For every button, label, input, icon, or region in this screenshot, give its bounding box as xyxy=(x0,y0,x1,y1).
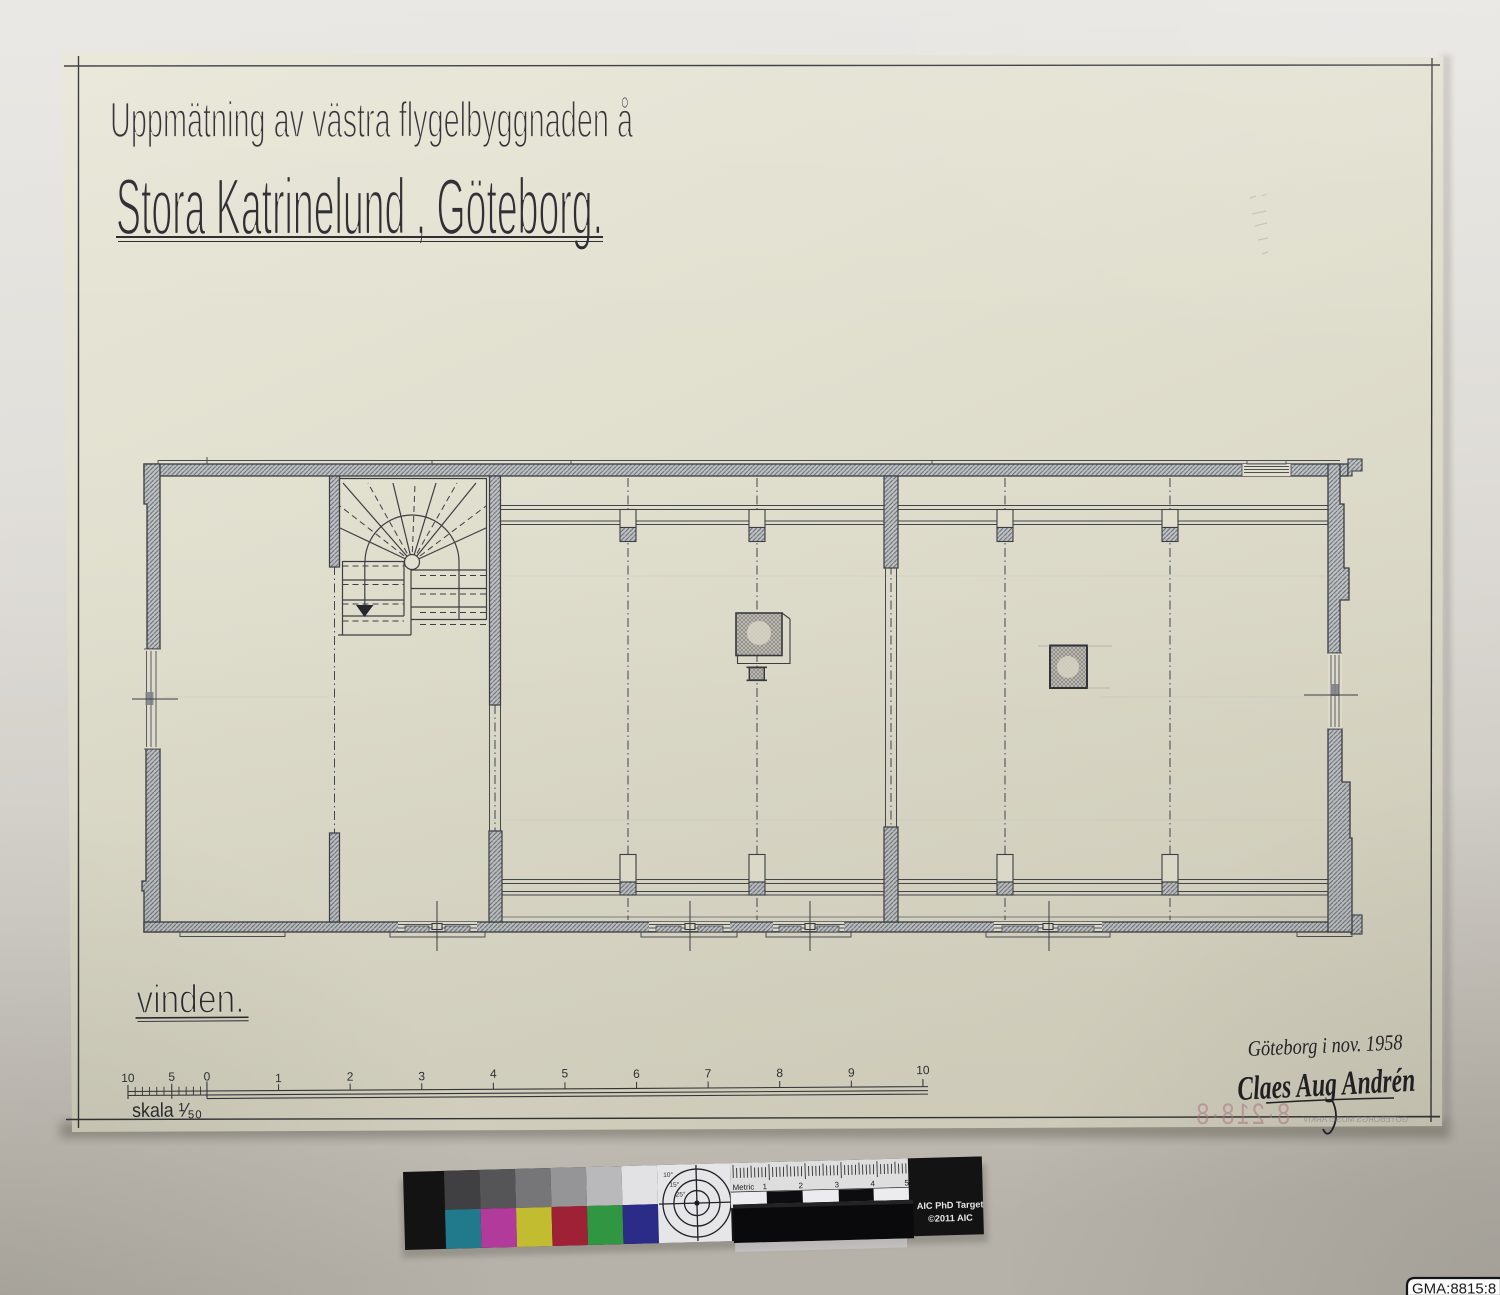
svg-text:1: 1 xyxy=(762,1182,767,1191)
svg-text:2: 2 xyxy=(798,1181,803,1190)
svg-text:25°: 25° xyxy=(676,1190,686,1198)
svg-text:3: 3 xyxy=(834,1180,839,1189)
svg-text:5: 5 xyxy=(904,1178,909,1187)
svg-text:GMA:8815:8: GMA:8815:8 xyxy=(1412,1281,1496,1295)
svg-text:15°: 15° xyxy=(669,1181,679,1189)
svg-text:AIC PhD Target: AIC PhD Target xyxy=(917,1199,984,1211)
svg-text:4: 4 xyxy=(870,1179,875,1188)
svg-text:©2011 AIC: ©2011 AIC xyxy=(928,1213,973,1224)
svg-text:10°: 10° xyxy=(663,1171,673,1179)
svg-text:Metric: Metric xyxy=(732,1183,754,1193)
